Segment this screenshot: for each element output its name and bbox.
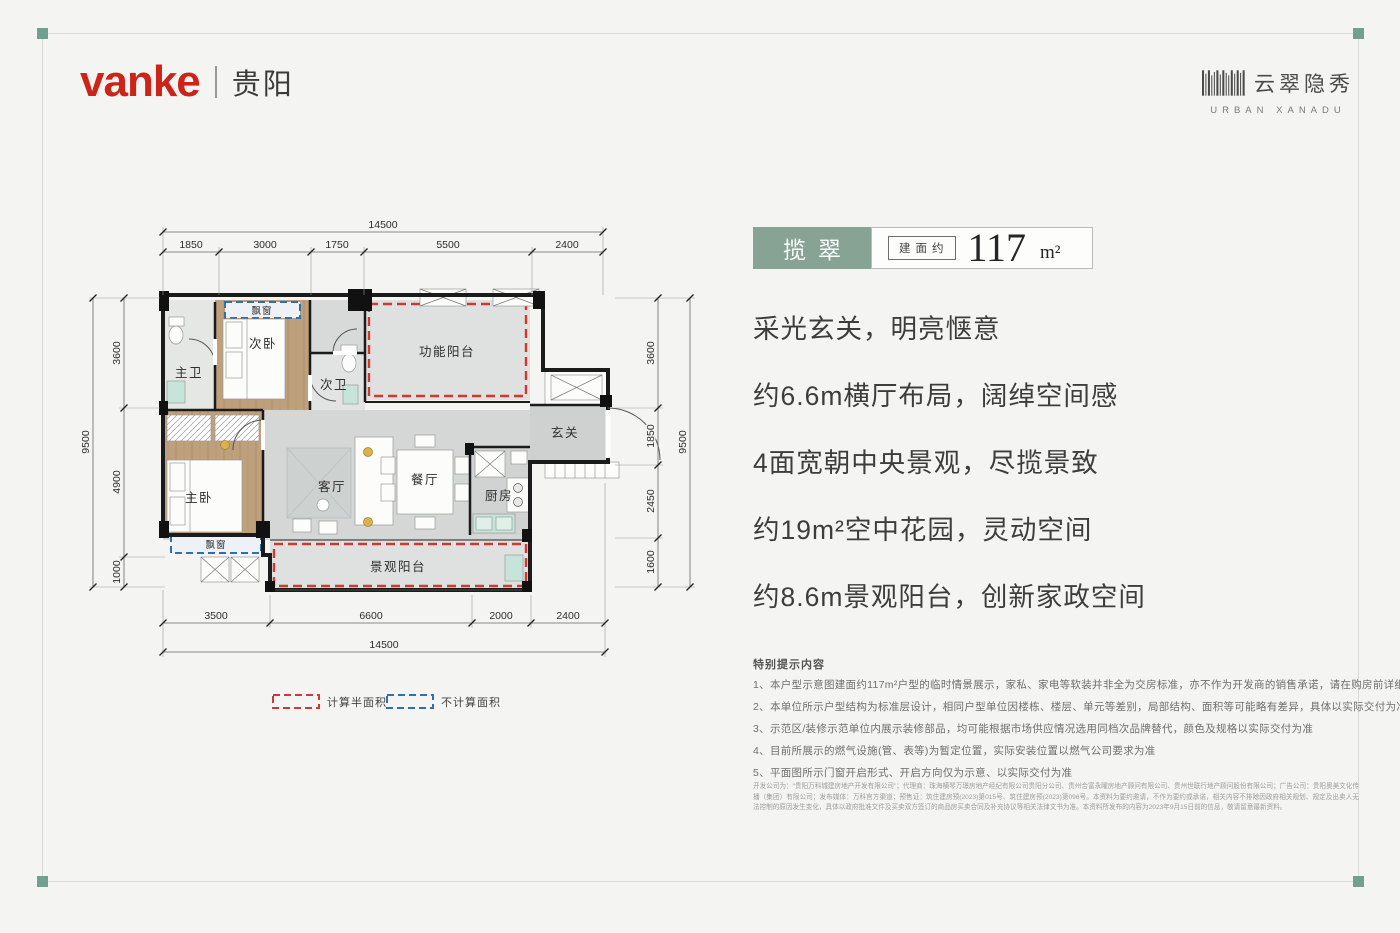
dim-left-total: 9500 [80,430,92,454]
selling-point: 约8.6m景观阳台，创新家政空间 [753,575,1146,614]
legend-no-area-label: 不计算面积 [441,695,501,709]
dim-bottom-seg: 6600 [359,610,383,622]
note-item: 2、本单位所示户型结构为标准层设计，相同户型单位因楼栋、楼层、单元等差别，局部结… [753,699,1400,714]
dim-top-total: 14500 [368,219,397,231]
unit-name: 揽翠 [753,227,871,269]
frame-corner-icon [1353,28,1364,39]
note-item: 5、平面图所示门窗开启形式、开启方向仅为示意、以实际交付为准 [753,765,1072,780]
room-label-dining: 餐厅 [411,472,439,487]
dim-top-seg: 1850 [179,239,203,251]
room-label-kitchen: 厨房 [485,488,513,503]
room-label-foyer: 玄关 [551,425,579,440]
brand-header: vanke 贵阳 [80,60,294,104]
note-item: 3、示范区/装修示范单位内展示装修部品，均可能根据市场供应情况选用同档次品牌替代… [753,721,1313,736]
floorplan-legend: 计算半面积 不计算面积 [273,695,501,709]
selling-point: 约6.6m横厅布局，阔绰空间感 [753,374,1118,413]
dim-bottom-seg: 3500 [204,610,228,622]
project-name-cn: 云翠隐秀 [1254,68,1354,98]
brand-divider [215,66,217,98]
bay-window-top: 飘窗 [225,302,300,318]
dim-right-total: 9500 [677,430,689,454]
room-label-bay-top: 飘窗 [251,305,272,317]
note-item: 1、本户型示意图建面约117m²户型的临时情景展示，家私、家电等软装并非全为交房… [753,677,1400,692]
frame-corner-icon [1353,876,1364,887]
area-unit: m² [1040,242,1060,268]
selling-point: 采光玄关，明亮惬意 [753,307,1001,346]
selling-point: 4面宽朝中央景观，尽揽景致 [753,441,1099,480]
frame-corner-icon [37,28,48,39]
room-label-bay-bottom: 飘窗 [205,539,226,551]
dim-left-seg: 1000 [111,560,123,584]
note-item: 4、目前所展示的燃气设施(管、表等)为暂定位置，实际安装位置以燃气公司要求为准 [753,743,1156,758]
room-label-living: 客厅 [318,479,346,494]
area-value: 117 [968,228,1027,268]
dim-left-seg: 3600 [111,341,123,365]
dim-top-seg: 1750 [325,239,349,251]
dim-top-seg: 2400 [555,239,579,251]
legend-half-area-label: 计算半面积 [327,695,387,709]
dim-left-seg: 4900 [111,470,123,494]
dim-right-seg: 2450 [645,489,657,513]
brand-barcode-icon [1202,66,1246,100]
dim-bottom-total: 14500 [369,639,398,651]
project-logo: 云翠隐秀 URBAN XANADU [1202,66,1354,116]
dim-right-seg: 1850 [645,424,657,448]
dim-right-seg: 3600 [645,341,657,365]
room-label-bedroom2: 次卧 [249,337,277,351]
floorplan: 飘窗 飘窗 [75,205,715,725]
room-label-master-bath: 主卫 [175,366,203,380]
legal-disclaimer: 开发公司为：“贵阳万科城建房地产开发有限公司”；代理商：珠海横琴万璟房地产经纪有… [753,782,1359,814]
vanke-logo: vanke [80,60,200,104]
dim-bottom-seg: 2000 [489,610,513,622]
dim-bottom-seg: 2400 [556,610,580,622]
room-label-bath2: 次卫 [320,378,348,392]
brand-city: 贵阳 [232,61,294,103]
unit-badge: 揽翠 建面约 117 m² [753,227,1093,269]
room-label-master-bedroom: 主卧 [185,491,213,505]
dim-right-seg: 1600 [645,550,657,574]
project-name-en: URBAN XANADU [1202,105,1354,116]
room-label-vista-balcony: 景观阳台 [370,559,426,574]
bay-window-bottom: 飘窗 [171,535,261,553]
frame-corner-icon [37,876,48,887]
dim-top-seg: 3000 [253,239,277,251]
area-label: 建面约 [888,236,956,260]
dim-top-seg: 5500 [436,239,460,251]
selling-point: 约19m²空中花园，灵动空间 [753,508,1092,547]
room-label-function-balcony: 功能阳台 [419,344,475,359]
notes-title: 特别提示内容 [753,656,825,672]
